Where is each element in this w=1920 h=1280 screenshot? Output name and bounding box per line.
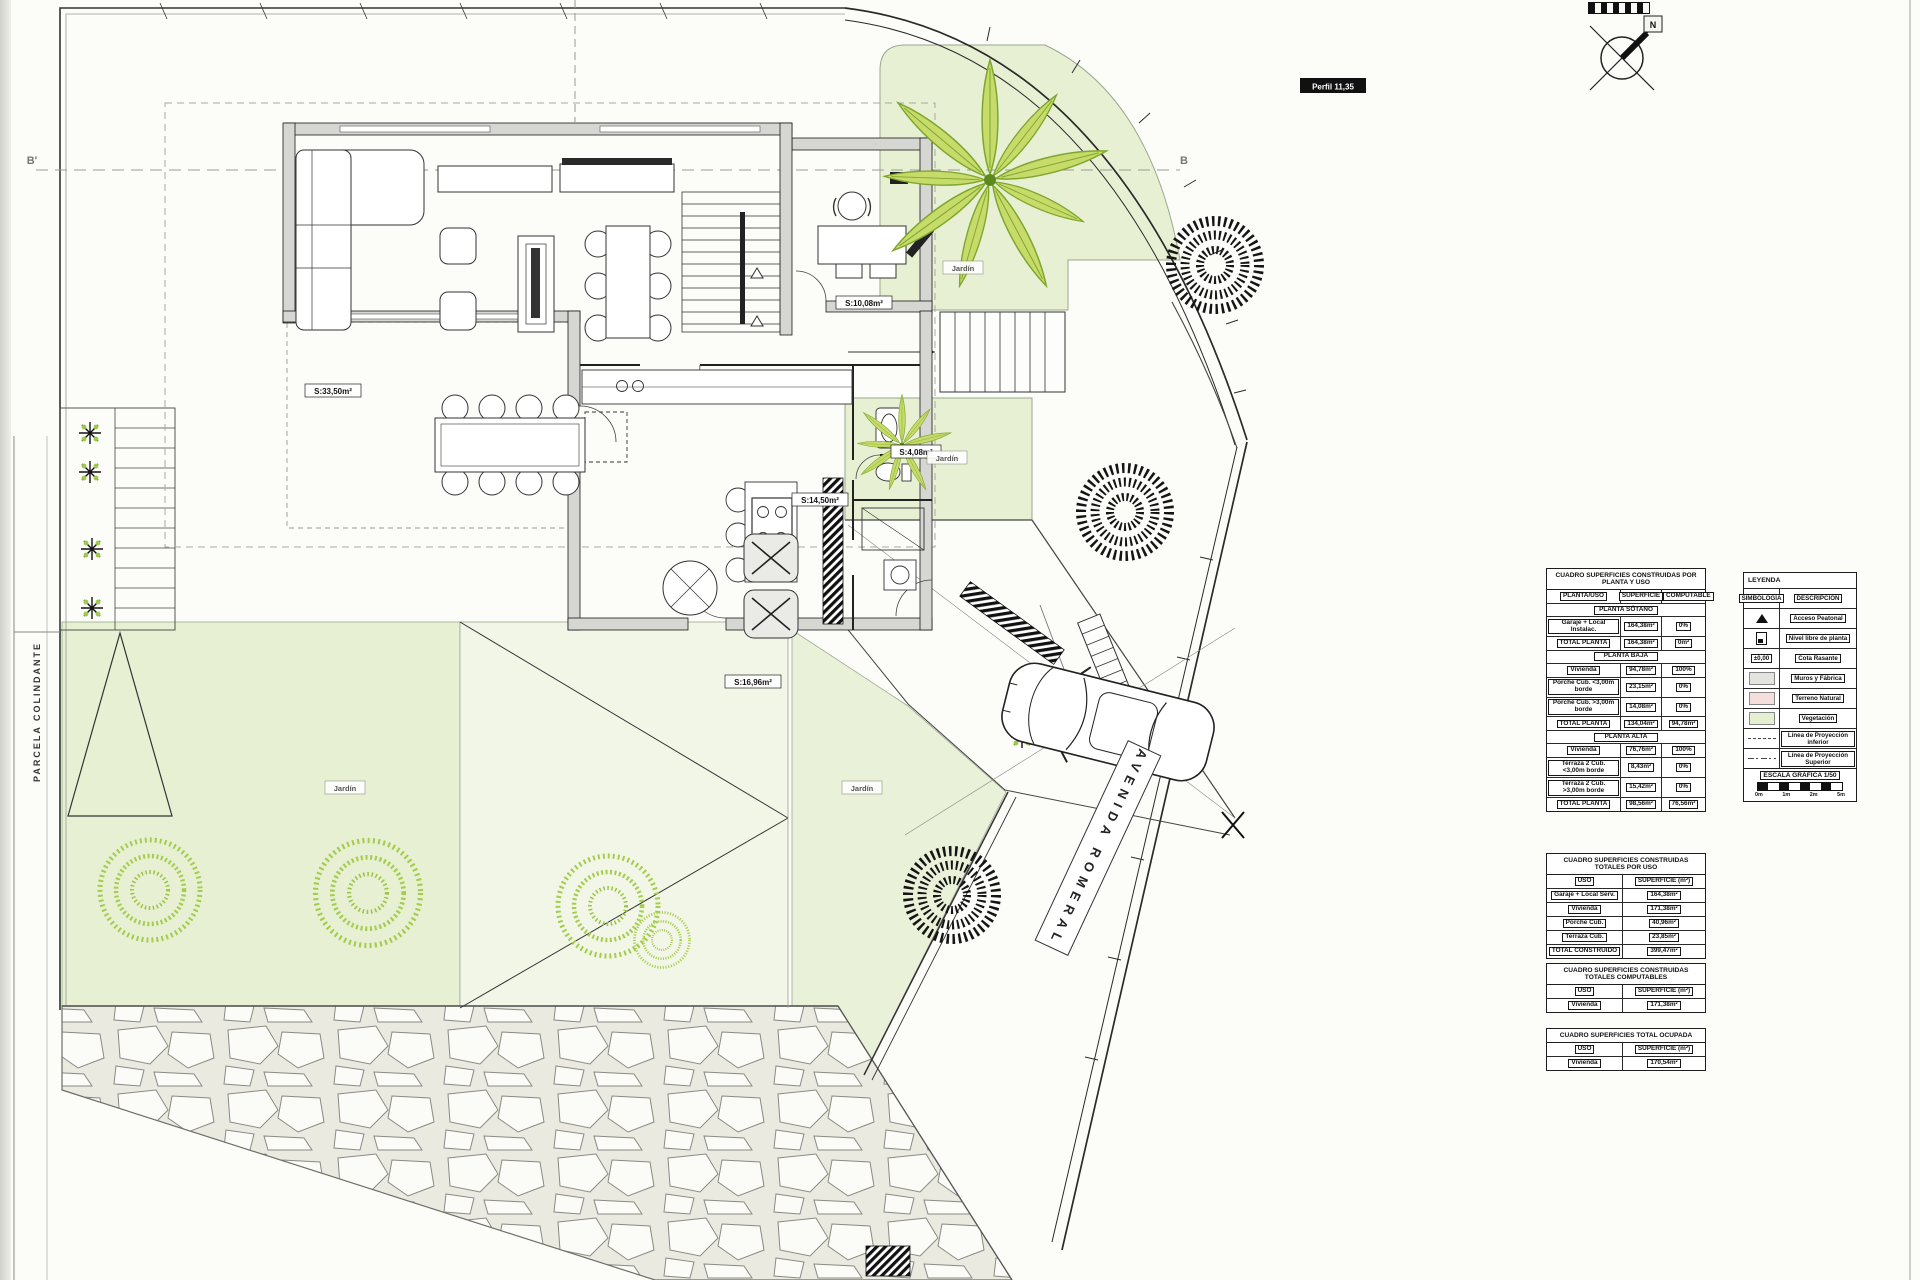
site-plan-sheet: S:33,50m² S:10,08m² S:14,50m² S:16,96m² … [0, 0, 1920, 1280]
table-row-total: TOTAL PLANTA 164,38m² 0m² [1547, 637, 1705, 651]
table-title: CUADRO SUPERFICIES CONSTRUIDAS TOTALES C… [1547, 964, 1705, 985]
cota-symbol: ±0,00 [1751, 654, 1772, 663]
legend-row: Línea de Proyección Superior [1744, 749, 1856, 768]
dashed-line-icon [1748, 738, 1776, 739]
dashdot-line-icon [1748, 758, 1776, 760]
jardin-label: Jardín [952, 264, 975, 273]
scale-title: ESCALA GRÁFICA 1/50 [1760, 771, 1839, 780]
scale-bar [1757, 782, 1843, 791]
table-header-row: USO SUPERFICIE (m²) [1547, 1043, 1705, 1057]
table-row: Porche Cub. <3,00m borde 23,15m² 0% [1547, 678, 1705, 698]
table-row-total: TOTAL PLANTA 134,04m² 94,78m² [1547, 717, 1705, 731]
table-row: Terraza 2 Cub. >3,00m borde 15,42m² 0% [1547, 778, 1705, 798]
despacho-label: S:10,08m² [845, 299, 883, 308]
washer [884, 560, 916, 590]
table-row: Vivienda 171,38m² [1547, 903, 1705, 917]
porche-label: S:33,50m² [314, 387, 352, 396]
plant-star [81, 597, 103, 619]
terrace-dining-table-8 [435, 395, 585, 495]
avenida-romeral-label: AVENIDA ROMERAL [1045, 747, 1150, 949]
table-header-row: PLANTA/USO SUPERFICIE COMPUTABLE [1547, 590, 1705, 604]
terrace-furniture [435, 395, 798, 638]
ottoman [440, 292, 476, 330]
tree-dark [1081, 468, 1169, 556]
sofa [296, 150, 351, 330]
jardin-label: Jardín [334, 784, 357, 793]
table-row: Vivienda 171,38m² [1547, 999, 1705, 1012]
desk [818, 226, 906, 264]
table-row: Porche Cub. >3,00m borde 14,08m² 0% [1547, 698, 1705, 718]
plant-star [81, 538, 103, 560]
plant-star [79, 461, 101, 483]
table-row: Terraza 2 Cub. <3,00m borde 8,43m² 0% [1547, 758, 1705, 778]
exterior-stairs [848, 312, 1065, 392]
office-chair [838, 192, 866, 220]
section-alta: PLANTA ALTA [1547, 731, 1705, 744]
north-label: N [1650, 20, 1657, 30]
table-row: Vivienda 94,78m² 100% [1547, 664, 1705, 678]
table-row: Porche Cub. 40,96m² [1547, 917, 1705, 931]
legend-row: Terreno Natural [1744, 689, 1856, 709]
terraza-label: S:16,96m² [734, 678, 772, 687]
staircase [682, 192, 780, 332]
section-sotano: PLANTA SÓTANO [1547, 604, 1705, 617]
legend-row: Vegetación [1744, 709, 1856, 729]
level-icon [1756, 632, 1767, 645]
table-row: Garaje + Local Serv. 164,38m² [1547, 889, 1705, 903]
section-marker-b: B [1180, 155, 1188, 167]
legend-row: Línea de Proyección inferior [1744, 729, 1856, 749]
media-wall [562, 158, 672, 165]
legend-title: LEYENDA [1744, 573, 1856, 589]
table-title: CUADRO SUPERFICIES CONSTRUIDAS POR PLANT… [1547, 569, 1705, 590]
tree-dark [1171, 221, 1259, 309]
perfil-label: Perfil 11,35 [1300, 78, 1366, 93]
compass-icon: N [1590, 16, 1662, 90]
lounge-chairs [744, 534, 798, 638]
table-row: Terraza Cub. 23,85m² [1547, 931, 1705, 945]
svg-text:Perfil 11,35: Perfil 11,35 [1312, 83, 1354, 92]
table-row-total: TOTAL CONSTRUIDO 399,47m² [1547, 945, 1705, 958]
legend: LEYENDA SIMBOLOGÍA DESCRIPCIÓN Acceso Pe… [1743, 572, 1857, 769]
triangle-icon [1756, 614, 1768, 623]
table-totales-por-uso: CUADRO SUPERFICIES CONSTRUIDAS TOTALES P… [1546, 853, 1706, 959]
graphic-scale: ESCALA GRÁFICA 1/50 0m 1m 2m 5m [1743, 768, 1857, 802]
plant-star [79, 422, 101, 444]
section-marker-b-prime: B' [27, 155, 38, 167]
table-title: CUADRO SUPERFICIES TOTAL OCUPADA [1547, 1029, 1705, 1043]
legend-row: Muros y Fábrica [1744, 669, 1856, 689]
dining-table-6 [585, 226, 671, 341]
jardin-label: Jardín [936, 454, 959, 463]
cocina-label: S:14,50m² [801, 496, 839, 505]
pantry [585, 412, 627, 462]
scale-ticks: 0m 1m 2m 5m [1755, 792, 1845, 798]
legend-header-row: SIMBOLOGÍA DESCRIPCIÓN [1744, 589, 1856, 609]
sideboard [560, 164, 674, 192]
legend-row: Acceso Peatonal [1744, 609, 1856, 629]
table-superficies-por-planta: CUADRO SUPERFICIES CONSTRUIDAS POR PLANT… [1546, 568, 1706, 812]
section-baja: PLANTA BAJA [1547, 651, 1705, 664]
street-name-sign: AVENIDA ROMERAL [1035, 741, 1161, 956]
ottoman [440, 228, 476, 264]
table-total-ocupada: CUADRO SUPERFICIES TOTAL OCUPADA USO SUP… [1546, 1028, 1706, 1071]
sideboard [438, 166, 552, 192]
jardin-label: Jardín [851, 784, 874, 793]
table-totales-computables: CUADRO SUPERFICIES CONSTRUIDAS TOTALES C… [1546, 963, 1706, 1013]
wall-swatch [1749, 672, 1775, 685]
table-row: Vivienda 170,54m² [1547, 1057, 1705, 1070]
legend-row: ±0,00 Cota Rasante [1744, 649, 1856, 669]
legend-row: Nivel libre de planta [1744, 629, 1856, 649]
vegetation-swatch [1749, 712, 1775, 725]
left-terrace-steps [60, 408, 175, 630]
table-title: CUADRO SUPERFICIES CONSTRUIDAS TOTALES P… [1547, 854, 1705, 875]
table-row-total: TOTAL PLANTA 98,56m² 76,56m² [1547, 798, 1705, 811]
table-row: Vivienda 76,76m² 100% [1547, 744, 1705, 758]
table-header-row: USO SUPERFICIE (m²) [1547, 985, 1705, 999]
table-header-row: USO SUPERFICIE (m²) [1547, 875, 1705, 889]
table-row: Garaje + Local Instalac. 164,38m² 0% [1547, 617, 1705, 637]
terrain-swatch [1749, 692, 1775, 705]
parcela-colindante-label: PARCELA COLINDANTE [32, 642, 42, 782]
